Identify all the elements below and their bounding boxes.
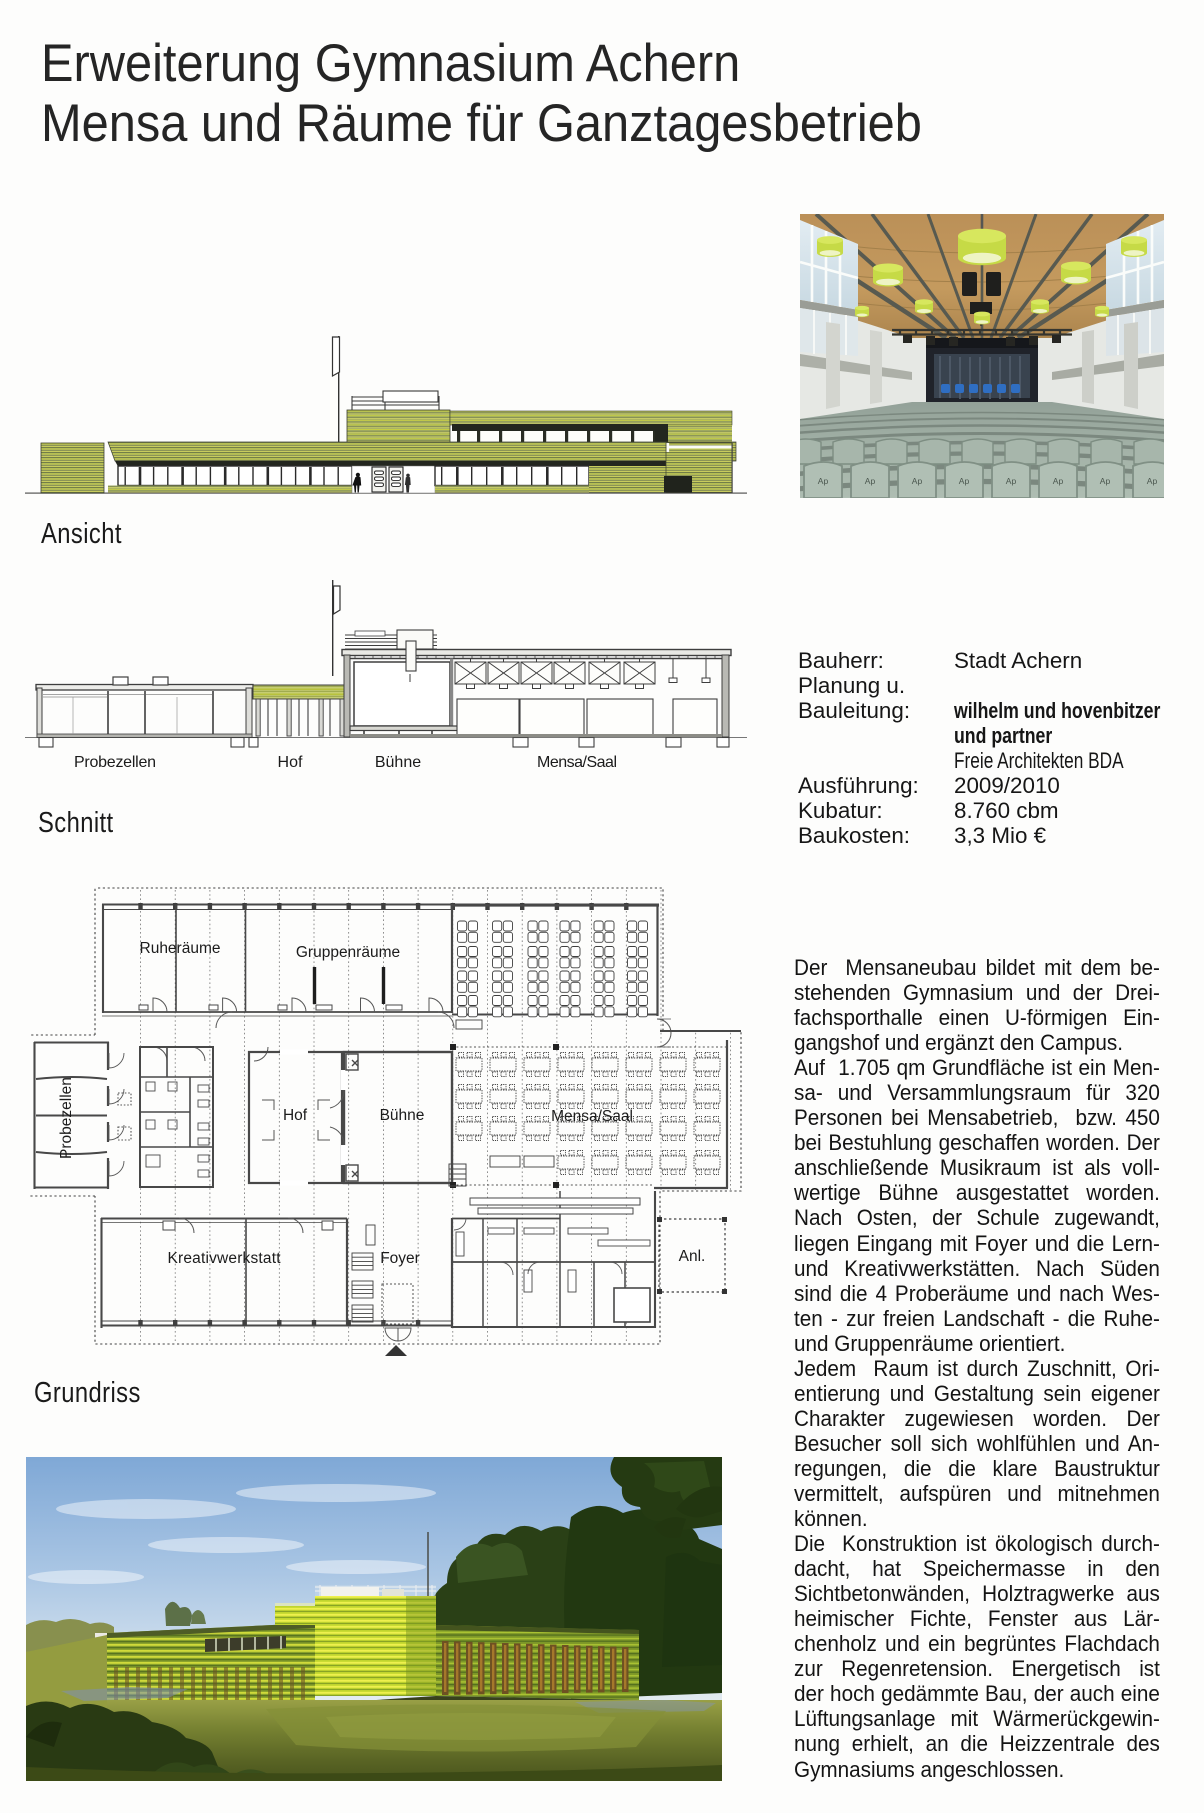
svg-text:Ap: Ap bbox=[865, 476, 876, 486]
svg-text:Bühne: Bühne bbox=[375, 754, 421, 771]
svg-text:Hof: Hof bbox=[283, 1107, 308, 1124]
svg-text:Hof: Hof bbox=[278, 754, 303, 771]
svg-text:Mensa/Saal: Mensa/Saal bbox=[551, 1108, 633, 1125]
svg-text:Ap: Ap bbox=[1100, 476, 1111, 486]
svg-text:Ap: Ap bbox=[1147, 476, 1158, 486]
svg-text:Gruppenräume: Gruppenräume bbox=[296, 944, 400, 961]
svg-text:Ap: Ap bbox=[959, 476, 970, 486]
svg-text:Probezellen: Probezellen bbox=[58, 1077, 75, 1159]
svg-text:Bühne: Bühne bbox=[380, 1107, 425, 1124]
svg-text:Ap: Ap bbox=[1006, 476, 1017, 486]
svg-text:Ap: Ap bbox=[1053, 476, 1064, 486]
svg-text:Ruheräume: Ruheräume bbox=[140, 940, 221, 957]
svg-text:Kreativwerkstatt: Kreativwerkstatt bbox=[168, 1250, 282, 1267]
svg-text:Ap: Ap bbox=[912, 476, 923, 486]
svg-text:Anl.: Anl. bbox=[679, 1248, 706, 1265]
svg-text:Foyer: Foyer bbox=[380, 1250, 420, 1267]
svg-text:Probezellen: Probezellen bbox=[74, 754, 156, 771]
svg-text:Ap: Ap bbox=[818, 476, 829, 486]
svg-text:Mensa/Saal: Mensa/Saal bbox=[537, 754, 617, 771]
